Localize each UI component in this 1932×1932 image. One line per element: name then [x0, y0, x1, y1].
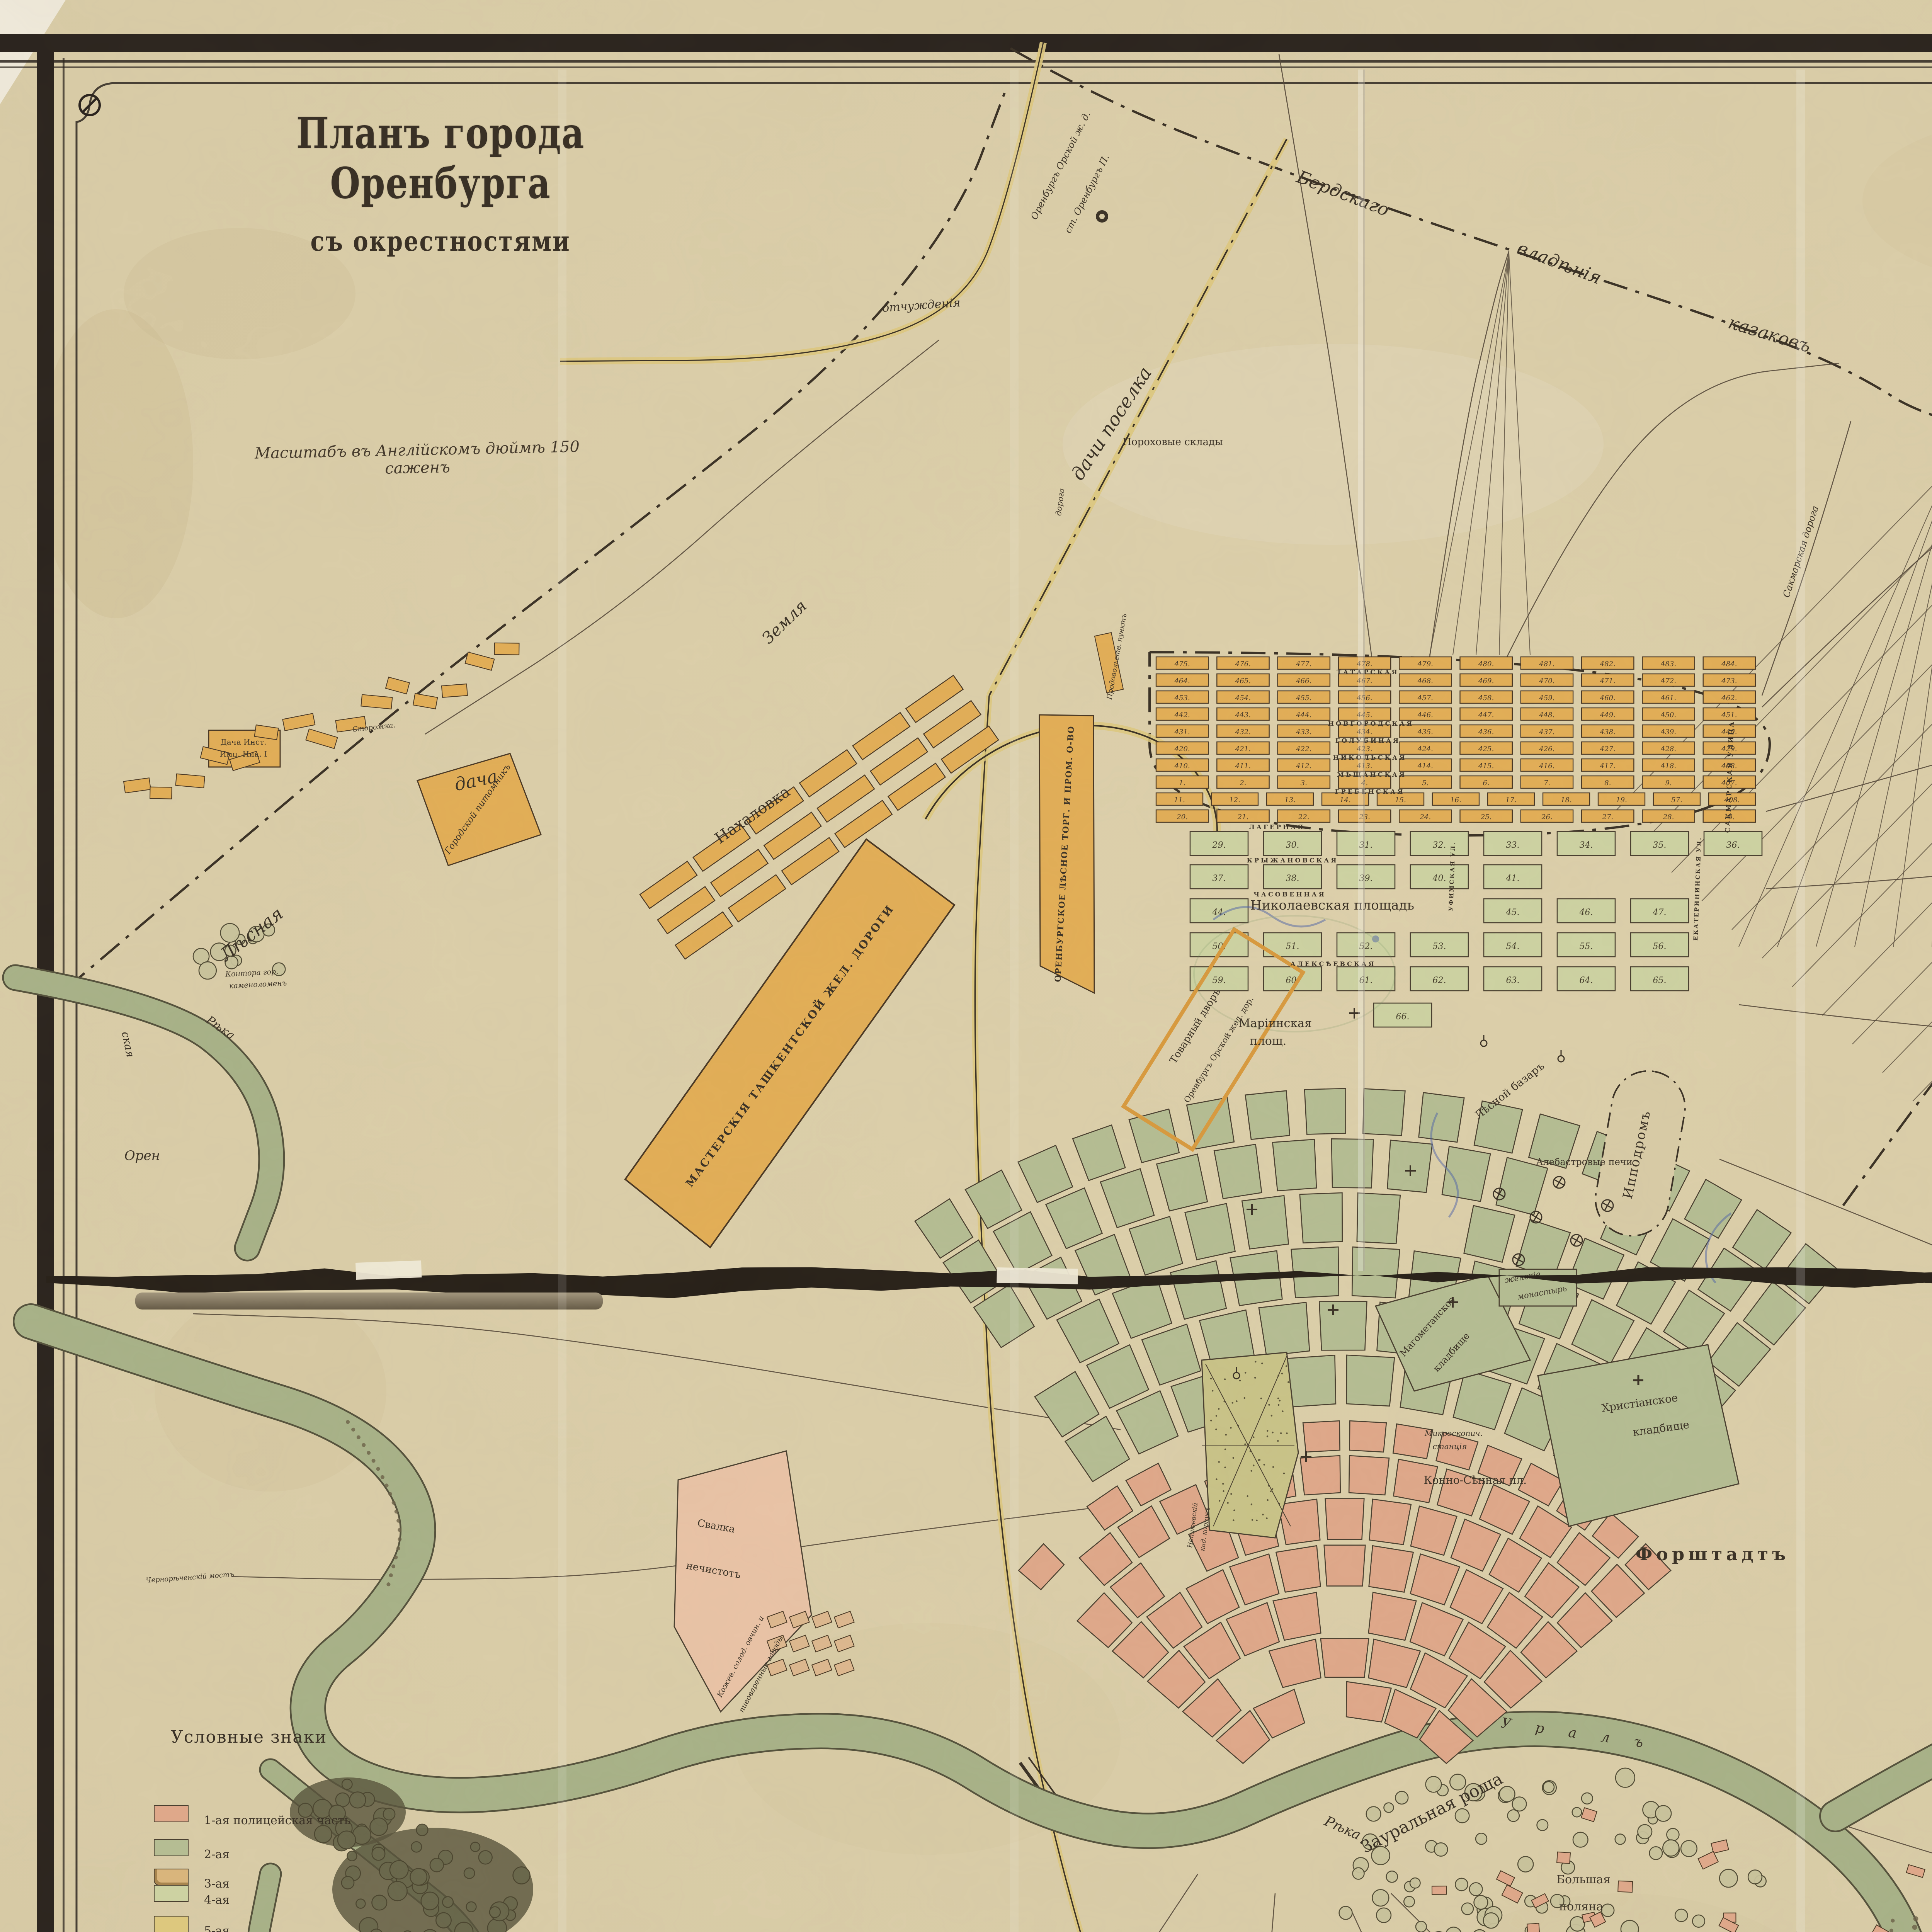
legend-swatch	[154, 1805, 189, 1822]
map-title: Планъ города Оренбурга	[246, 108, 635, 209]
legend-swatch	[154, 1839, 189, 1856]
map-canvas: 475.476.477.478.479.480.481.482.483.484.…	[0, 0, 1932, 1932]
legend: Условные знаки 1-ая полицейская часть2-а…	[147, 1716, 479, 1932]
map-sheet: 475.476.477.478.479.480.481.482.483.484.…	[0, 0, 1932, 1932]
legend-district-2: 2-ая	[147, 1839, 230, 1862]
paper-grain	[0, 0, 1932, 1932]
legend-district-4: 4-ая	[147, 1885, 230, 1908]
legend-district-5: 5-ая	[147, 1916, 230, 1932]
legend-swatch	[154, 1916, 189, 1932]
map-title-block: Планъ города Оренбурга съ окрестностями	[236, 116, 645, 255]
legend-district-label: 1-ая полицейская часть	[204, 1814, 350, 1827]
legend-district-1: 1-ая полицейская часть	[147, 1805, 350, 1828]
legend-swatch	[154, 1885, 189, 1902]
map-subtitle: съ окрестностями	[246, 225, 635, 258]
legend-swatch	[154, 1869, 189, 1886]
legend-district-label: 2-ая	[204, 1848, 230, 1861]
legend-header: Условные знаки	[171, 1727, 327, 1747]
legend-district-label: 4-ая	[204, 1893, 230, 1907]
legend-district-label: 5-ая	[204, 1924, 230, 1932]
